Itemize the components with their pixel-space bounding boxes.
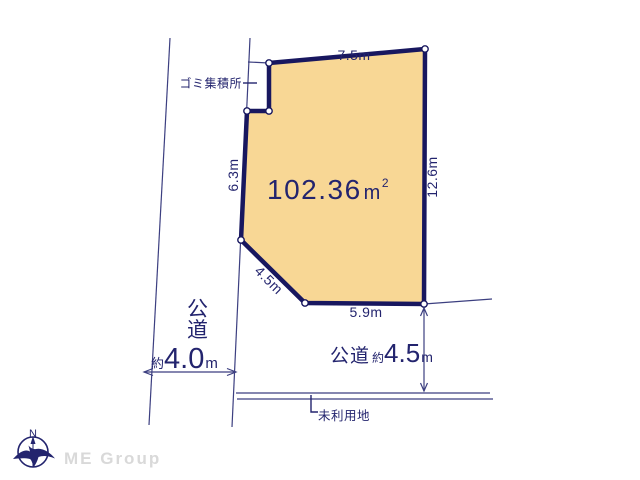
unused-land-leader xyxy=(311,395,318,412)
area-superscript: 2 xyxy=(382,177,390,189)
site-plan-canvas: N ゴミ集積所 7.5m 12.6m 6.3m 4.5m 5.9m 102.36… xyxy=(0,0,640,480)
dimension-left: 6.3m xyxy=(225,158,241,191)
road-bottom-approx: 約 xyxy=(372,349,384,366)
road-bottom-width-value: 4.5 xyxy=(384,340,420,366)
vertex-point xyxy=(422,46,428,52)
road-left-width-unit: m xyxy=(205,355,218,372)
vertex-point xyxy=(238,237,244,243)
vertex-point xyxy=(421,301,427,307)
vertex-point xyxy=(302,300,308,306)
area-unit: m xyxy=(364,183,382,203)
vertex-point xyxy=(266,60,272,66)
dimension-right: 12.6m xyxy=(424,156,440,197)
road-bottom-label: 公道 約 4.5 m xyxy=(330,340,433,368)
road-left-width-label: 約 4.0 m xyxy=(151,345,218,374)
dimension-bottom: 5.9m xyxy=(349,304,382,320)
watermark-logo-text: ME Group xyxy=(64,449,161,469)
road-bottom-width-unit: m xyxy=(421,349,433,365)
parcel-area-label: 102.36 m 2 xyxy=(267,176,390,204)
compass-north-label: N xyxy=(29,428,37,440)
road-left-name-label: 公道 xyxy=(187,300,208,341)
vertex-point xyxy=(244,108,250,114)
road-left-approx: 約 xyxy=(151,353,164,372)
compass-icon: N xyxy=(13,428,55,468)
unused-land-label: 未利用地 xyxy=(318,405,370,424)
area-value: 102.36 xyxy=(267,176,362,204)
vertex-point xyxy=(266,108,272,114)
road-left-width-value: 4.0 xyxy=(164,345,204,374)
dimension-top: 7.5m xyxy=(337,47,370,63)
road-bottom-name: 公道 xyxy=(330,341,370,368)
boundary-extension-line xyxy=(424,299,492,304)
garbage-station-label: ゴミ集積所 xyxy=(179,75,242,92)
